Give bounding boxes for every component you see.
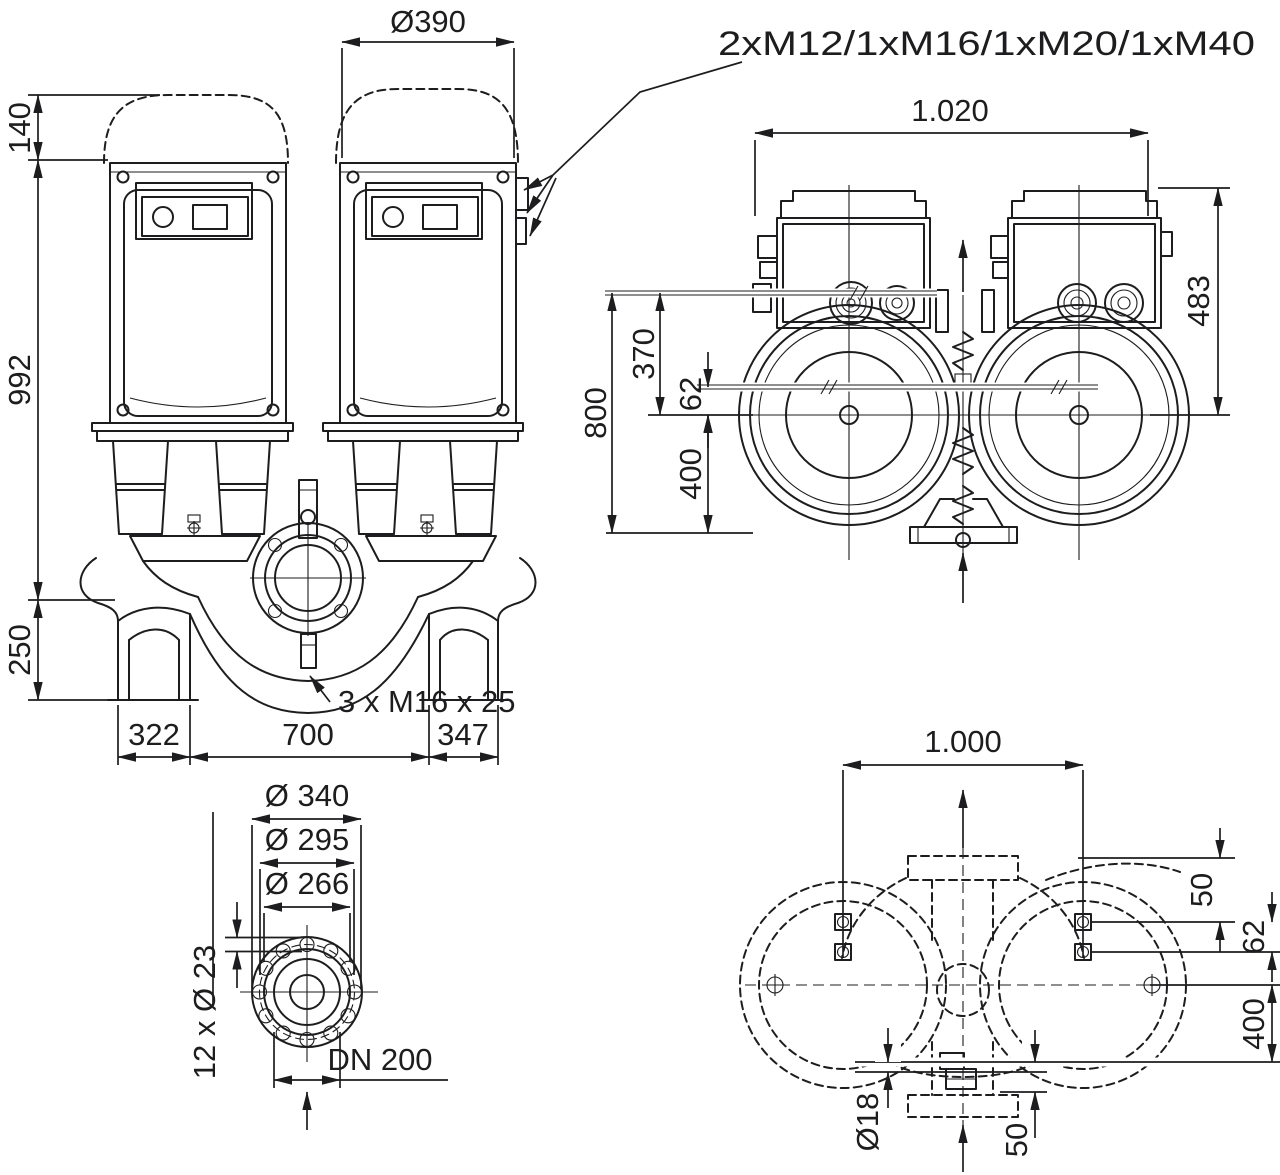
motor-stool-left: [130, 536, 260, 561]
dim-hood-height: 140: [2, 95, 160, 160]
motor-hood-right: [336, 89, 518, 163]
dim-text: 800: [578, 387, 613, 439]
top-view: 1.020 483 800 370 62 400: [578, 93, 1230, 603]
dim-text: 62: [1236, 920, 1271, 954]
dim-bolt-hole-size: 12 x Ø 23: [187, 902, 302, 1079]
motor-flange-plates: [92, 423, 523, 441]
dim-axis-offset: 62: [673, 352, 708, 448]
dim-base-height: 250: [2, 600, 115, 700]
dim-text: Ø 266: [265, 866, 349, 901]
terminal-box-right: [991, 191, 1172, 328]
dim-text: 1.020: [911, 93, 989, 128]
dim-rear-to-axis: 370: [626, 293, 661, 415]
dim-text: 1.000: [924, 724, 1002, 759]
bolt-holes-label: 12 x Ø 23: [187, 945, 222, 1079]
dim-text: 250: [2, 624, 37, 676]
motor-fins: [113, 441, 497, 534]
dim-text: 322: [128, 717, 180, 752]
dim-bolt-spacing: 62: [1236, 892, 1272, 982]
pump-volute: [81, 480, 536, 713]
cable-glands-label: 2xM12/1xM16/1xM20/1xM40: [718, 25, 1255, 63]
electronic-module-right: [340, 163, 528, 423]
bolt-symbols: [187, 515, 434, 535]
pump-dimensional-drawing: Ø390 140 992 250 322 700 3: [0, 0, 1280, 1175]
dim-anchor-hole: Ø18: [850, 1028, 901, 1151]
dim-text: Ø 340: [265, 778, 349, 813]
dim-text: 62: [673, 377, 708, 411]
dim-text: 50: [999, 1123, 1034, 1157]
dim-text: 483: [1181, 275, 1216, 327]
dim-hood-diameter: Ø390: [342, 4, 514, 158]
terminal-box-hood: [781, 191, 926, 218]
motor-hood-left: [104, 95, 288, 163]
dim-axis-to-edge: 400: [1236, 985, 1272, 1062]
dim-text: Ø 295: [265, 822, 349, 857]
dim-top-width: 1.020: [755, 93, 1148, 216]
dim-text: 992: [2, 354, 37, 406]
anchor-hole-label: Ø18: [850, 1093, 885, 1152]
dim-text: 140: [2, 102, 37, 154]
terminal-box-left: [753, 191, 930, 328]
terminal-box-hood: [1012, 191, 1157, 218]
dim-text: 347: [437, 717, 489, 752]
dim-text: 50: [1184, 873, 1219, 907]
cable-gland-tab: [516, 218, 526, 244]
nominal-bore-label: DN 200: [327, 1042, 432, 1077]
dim-text: 700: [282, 717, 334, 752]
dim-axis-to-front: 400: [673, 415, 708, 533]
leader-cable-glands: 2xM12/1xM16/1xM20/1xM40: [524, 25, 1255, 236]
dim-body-height: 992: [2, 160, 115, 600]
display-window: [193, 205, 227, 229]
control-button: [153, 207, 173, 227]
foundation-view: 1.000 50 62 400 Ø18 50: [740, 724, 1280, 1172]
display-window: [423, 205, 457, 229]
dim-foundation-width: 1.000: [843, 724, 1083, 765]
dim-text: 400: [673, 448, 708, 500]
leader-tapped-holes: 3 x M16 x 25: [310, 676, 515, 719]
tapped-holes-label: 3 x M16 x 25: [338, 684, 515, 719]
motor-stool-right: [366, 536, 496, 561]
dim-depth-total: 800: [578, 293, 753, 533]
control-button: [383, 207, 403, 227]
cable-gland-tab: [516, 178, 528, 210]
electronic-module-left: [110, 163, 286, 423]
dim-text: 400: [1236, 998, 1271, 1050]
technical-drawing-page: Ø390 140 992 250 322 700 3: [0, 0, 1280, 1175]
flange-view: Ø 340 Ø 295 Ø 266 12 x Ø 23 DN 200: [187, 778, 448, 1130]
dim-text: 370: [626, 328, 661, 380]
dim-text: Ø390: [390, 4, 466, 39]
dim-flange-offset: 50: [999, 1030, 1048, 1157]
dim-edge-to-bolt: 50: [1184, 828, 1220, 952]
